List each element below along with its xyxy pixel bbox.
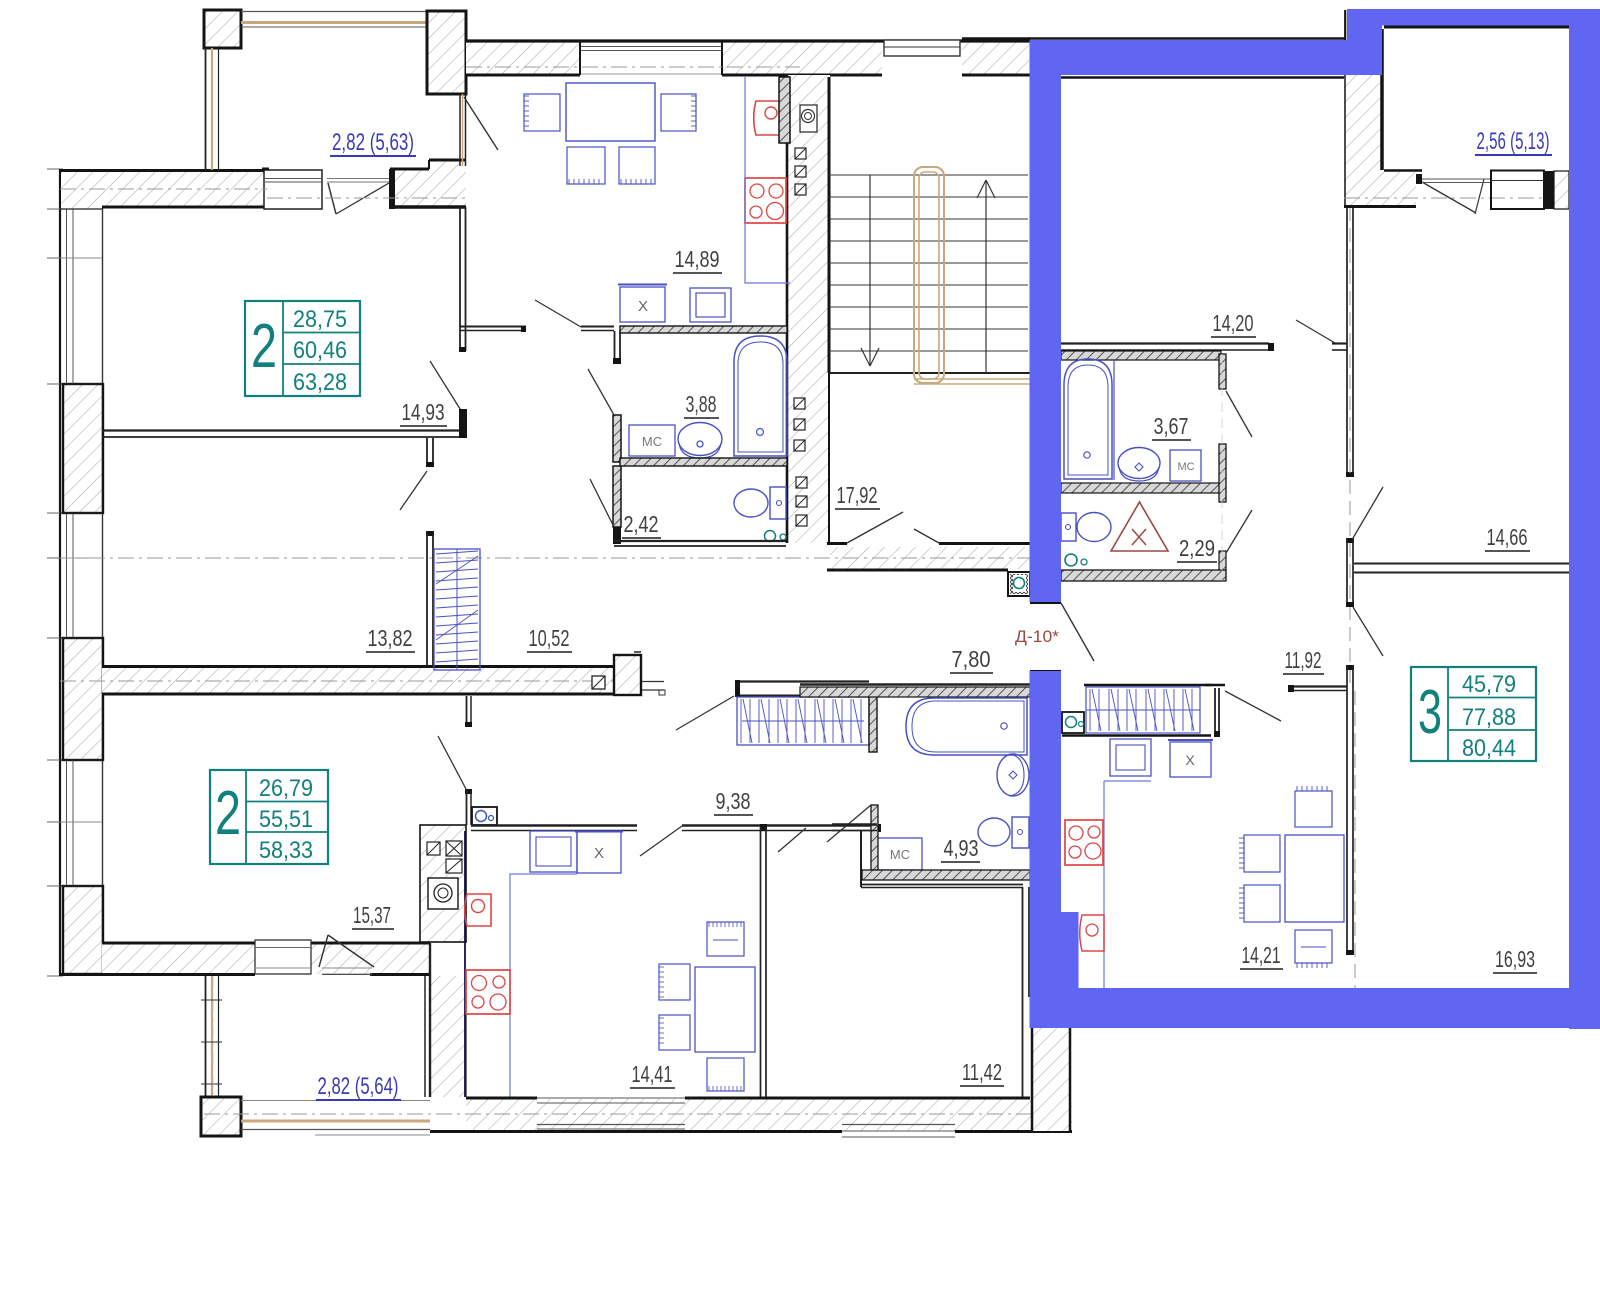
svg-text:4,93: 4,93 <box>944 835 979 861</box>
svg-text:14,89: 14,89 <box>675 246 720 272</box>
svg-text:3,88: 3,88 <box>686 391 717 417</box>
svg-text:14,66: 14,66 <box>1487 524 1528 550</box>
svg-text:X: X <box>638 298 648 315</box>
svg-text:X: X <box>1185 752 1195 768</box>
svg-text:14,93: 14,93 <box>402 399 445 425</box>
svg-text:2: 2 <box>215 779 241 848</box>
svg-text:45,79: 45,79 <box>1462 671 1516 698</box>
svg-text:X: X <box>594 845 604 862</box>
svg-text:14,21: 14,21 <box>1242 942 1281 968</box>
svg-text:2: 2 <box>251 312 277 381</box>
svg-text:63,28: 63,28 <box>293 369 347 396</box>
svg-text:3: 3 <box>1418 678 1442 747</box>
svg-text:9,38: 9,38 <box>716 788 751 814</box>
svg-text:77,88: 77,88 <box>1462 704 1516 731</box>
svg-text:14,20: 14,20 <box>1213 310 1254 336</box>
svg-text:11,42: 11,42 <box>962 1059 1002 1085</box>
svg-text:11,92: 11,92 <box>1285 647 1322 673</box>
svg-text:МС: МС <box>890 847 910 862</box>
svg-text:2,42: 2,42 <box>624 511 659 537</box>
svg-text:2,56 (5,13): 2,56 (5,13) <box>1477 128 1550 155</box>
svg-text:60,46: 60,46 <box>293 337 347 364</box>
svg-text:3,67: 3,67 <box>1154 413 1189 439</box>
svg-text:13,82: 13,82 <box>368 625 413 651</box>
svg-text:16,93: 16,93 <box>1495 946 1535 972</box>
svg-text:17,92: 17,92 <box>837 482 878 508</box>
svg-text:15,37: 15,37 <box>353 902 391 928</box>
svg-text:55,51: 55,51 <box>259 806 313 833</box>
svg-text:28,75: 28,75 <box>293 306 347 333</box>
svg-text:2,82 (5,64): 2,82 (5,64) <box>318 1073 399 1100</box>
svg-text:МС: МС <box>1177 461 1194 473</box>
svg-text:МС: МС <box>642 434 662 449</box>
svg-text:58,33: 58,33 <box>259 837 313 864</box>
svg-text:Д-10*: Д-10* <box>1015 627 1059 646</box>
svg-text:10,52: 10,52 <box>529 625 570 651</box>
svg-text:26,79: 26,79 <box>259 775 313 802</box>
svg-text:7,80: 7,80 <box>952 646 991 672</box>
svg-text:2,29: 2,29 <box>1179 535 1215 561</box>
svg-text:80,44: 80,44 <box>1462 735 1516 762</box>
svg-text:14,41: 14,41 <box>632 1061 673 1087</box>
svg-text:2,82 (5,63): 2,82 (5,63) <box>332 129 414 156</box>
